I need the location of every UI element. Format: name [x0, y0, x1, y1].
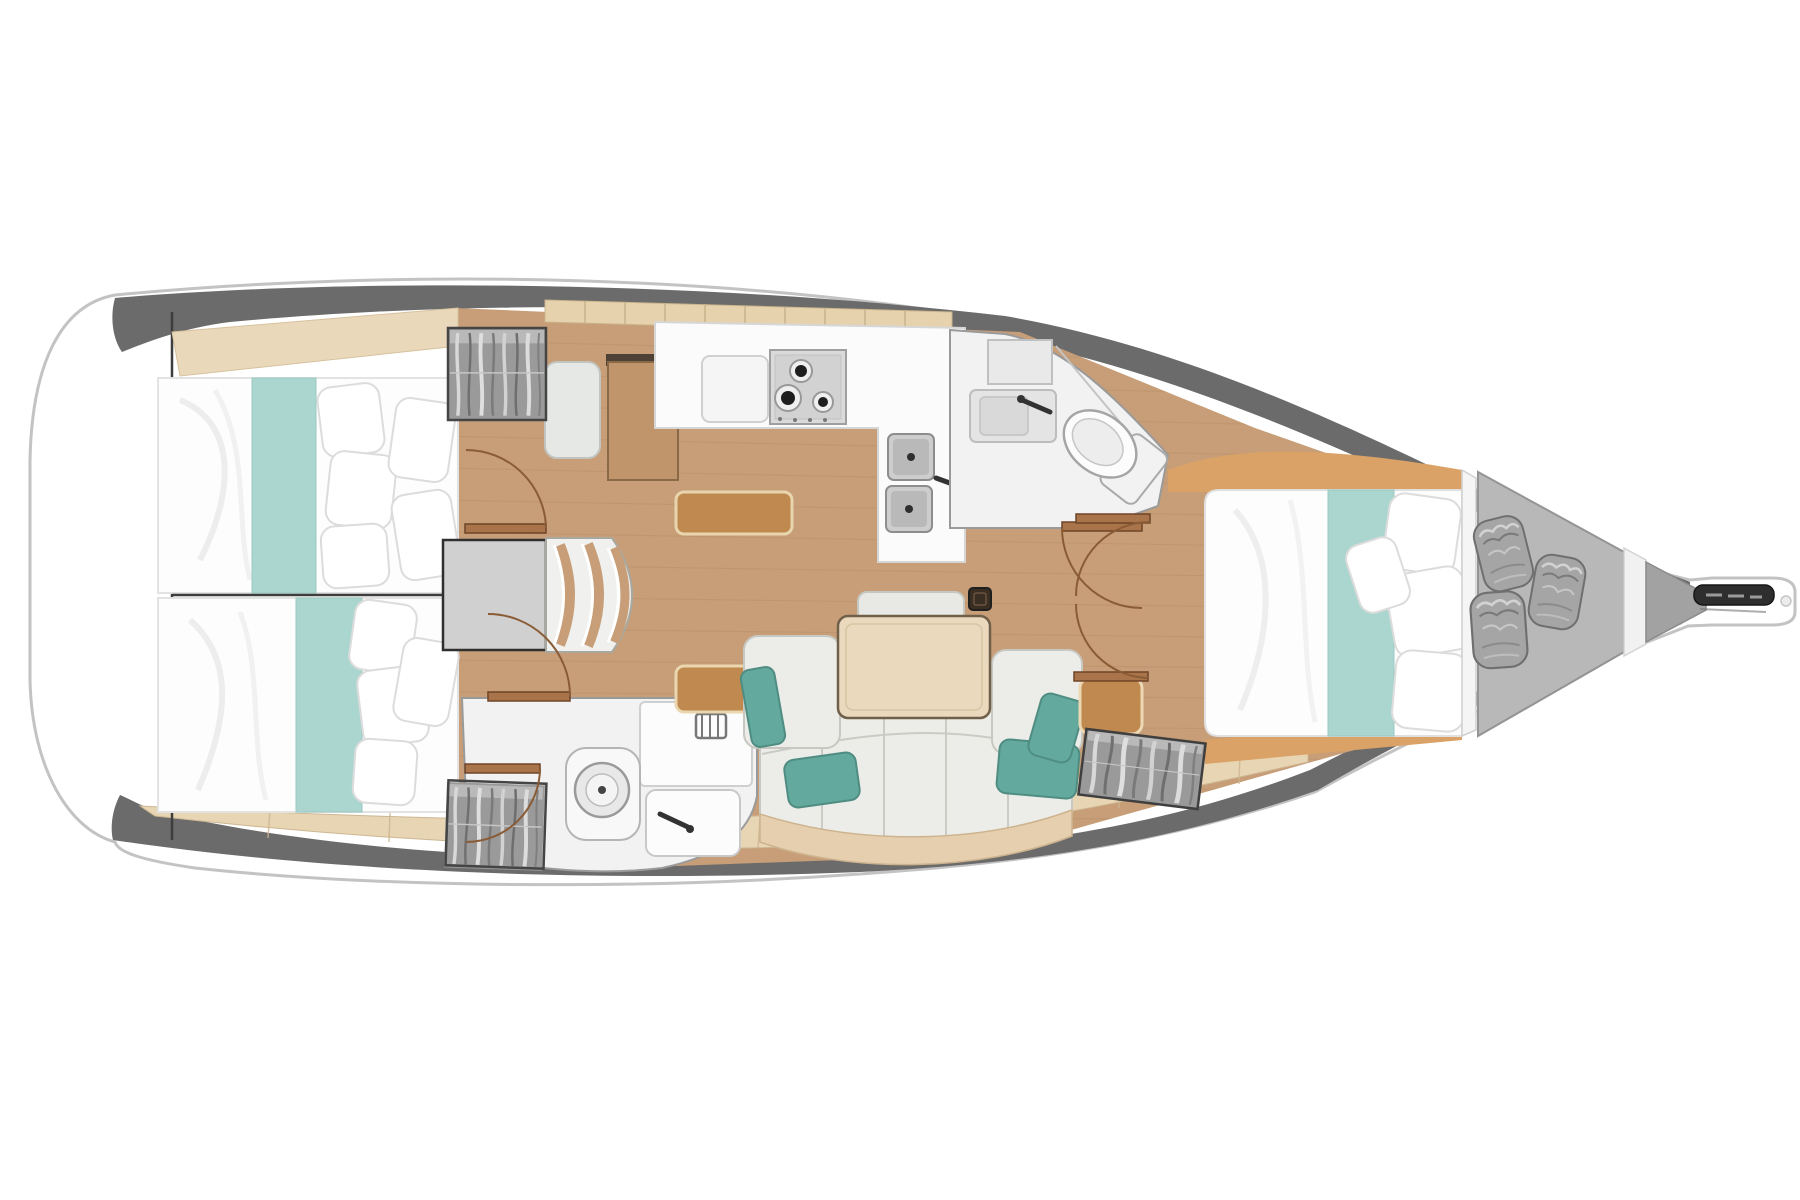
toilet-icon	[566, 748, 640, 840]
aft-cabin-port	[158, 308, 462, 593]
bow-notch	[1781, 596, 1791, 606]
aft-cabin-starboard	[158, 598, 461, 812]
mast-post-icon	[969, 588, 991, 610]
wash-basin-icon	[646, 790, 740, 856]
dining-table	[838, 616, 990, 718]
yacht-floor-plan	[0, 0, 1800, 1200]
locker-bulkhead	[1624, 548, 1646, 656]
bed-runner	[252, 378, 316, 593]
engine-box	[443, 540, 546, 650]
aft-head	[444, 698, 757, 871]
stove-3-burner-icon	[770, 350, 846, 424]
mirror-cabinet	[988, 340, 1052, 384]
galley-cabinet-door	[702, 356, 768, 422]
bed-runner	[1328, 490, 1394, 736]
floor-plan-canvas	[0, 0, 1800, 1200]
hanging-locker-aft-head	[444, 782, 545, 871]
hanging-locker-aft	[448, 328, 546, 420]
companionway	[443, 538, 632, 652]
fwd-cabin-seat	[1080, 678, 1142, 734]
vanity-sink-icon	[970, 390, 1056, 442]
sail-locker	[1469, 472, 1774, 736]
companionway-steps	[546, 538, 632, 652]
nav-locker	[676, 492, 792, 534]
nav-seat	[545, 362, 600, 458]
